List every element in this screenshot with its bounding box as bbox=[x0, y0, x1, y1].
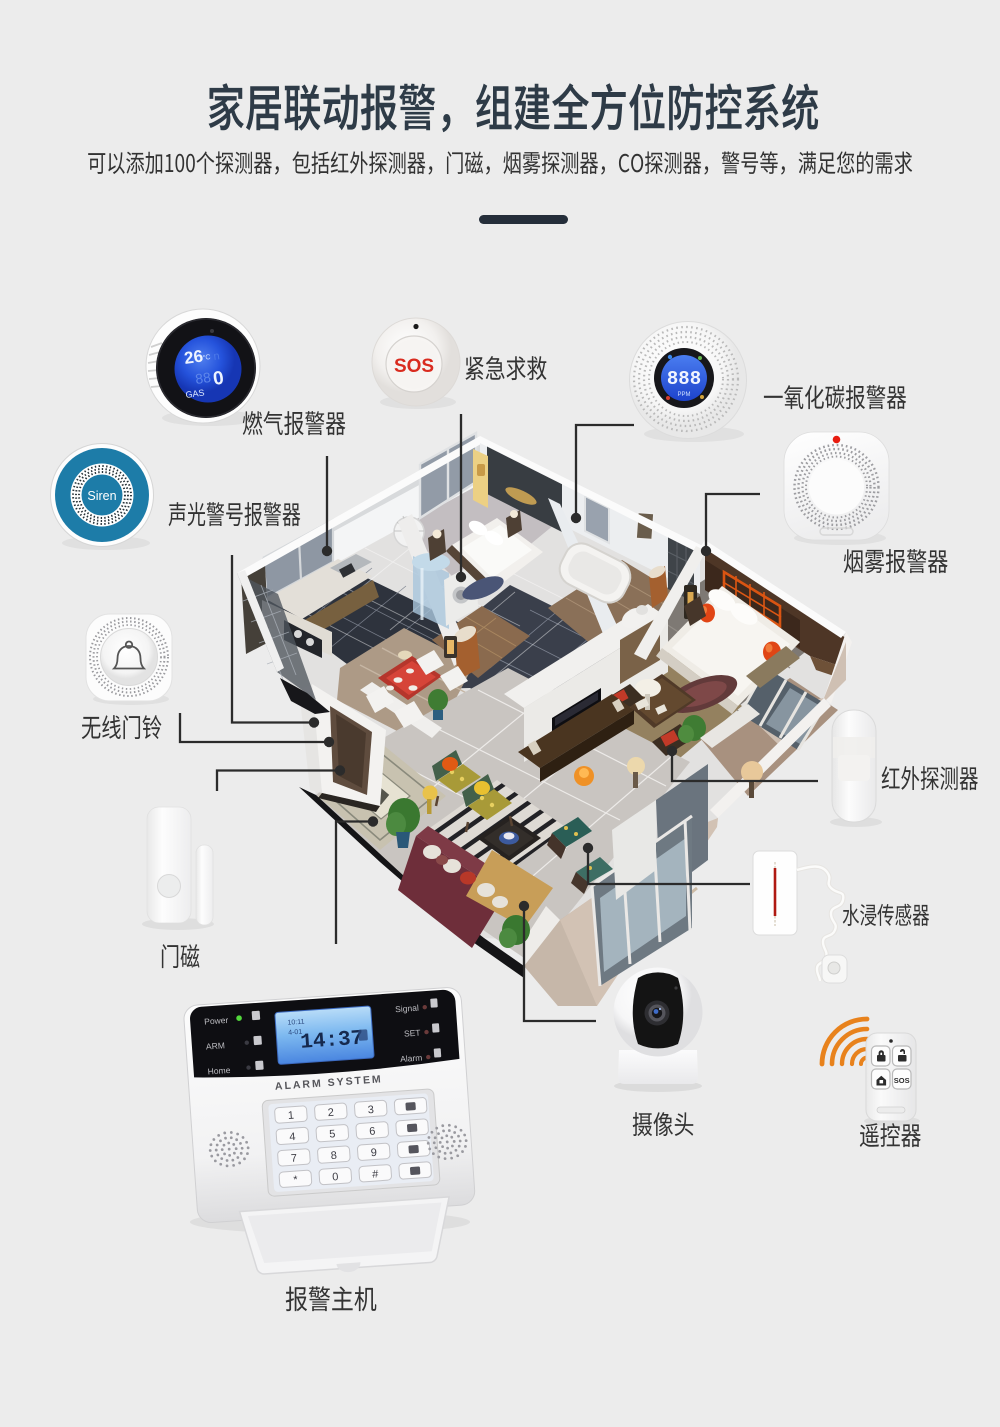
svg-text:3: 3 bbox=[367, 1104, 374, 1116]
svg-text:88: 88 bbox=[194, 369, 212, 387]
svg-text:PPM: PPM bbox=[677, 392, 690, 398]
svg-text:Signal: Signal bbox=[395, 1003, 419, 1015]
svg-text:0: 0 bbox=[332, 1171, 339, 1183]
svg-text:Power: Power bbox=[204, 1015, 229, 1027]
svg-text:888: 888 bbox=[667, 368, 701, 390]
svg-text:14:37: 14:37 bbox=[300, 1028, 364, 1055]
svg-text:9: 9 bbox=[370, 1147, 377, 1159]
svg-text:5: 5 bbox=[329, 1128, 336, 1140]
svg-text:Alarm: Alarm bbox=[400, 1052, 423, 1064]
svg-text:SOS: SOS bbox=[394, 356, 434, 377]
svg-text:Siren: Siren bbox=[87, 489, 116, 503]
svg-text:Home: Home bbox=[207, 1065, 231, 1077]
svg-text:SET: SET bbox=[404, 1028, 421, 1039]
svg-text:4: 4 bbox=[289, 1131, 296, 1143]
svg-text:°C: °C bbox=[202, 353, 211, 362]
svg-text:4-01: 4-01 bbox=[288, 1029, 303, 1037]
svg-text:7: 7 bbox=[291, 1152, 298, 1164]
svg-text:10:11: 10:11 bbox=[287, 1019, 305, 1027]
svg-text:8: 8 bbox=[330, 1150, 337, 1162]
svg-text:6: 6 bbox=[369, 1125, 376, 1137]
svg-text:1: 1 bbox=[288, 1110, 295, 1122]
svg-text:2: 2 bbox=[327, 1107, 334, 1119]
svg-text:SOS: SOS bbox=[894, 1076, 910, 1085]
svg-text:26: 26 bbox=[183, 347, 204, 368]
svg-text:ARM: ARM bbox=[206, 1040, 226, 1051]
